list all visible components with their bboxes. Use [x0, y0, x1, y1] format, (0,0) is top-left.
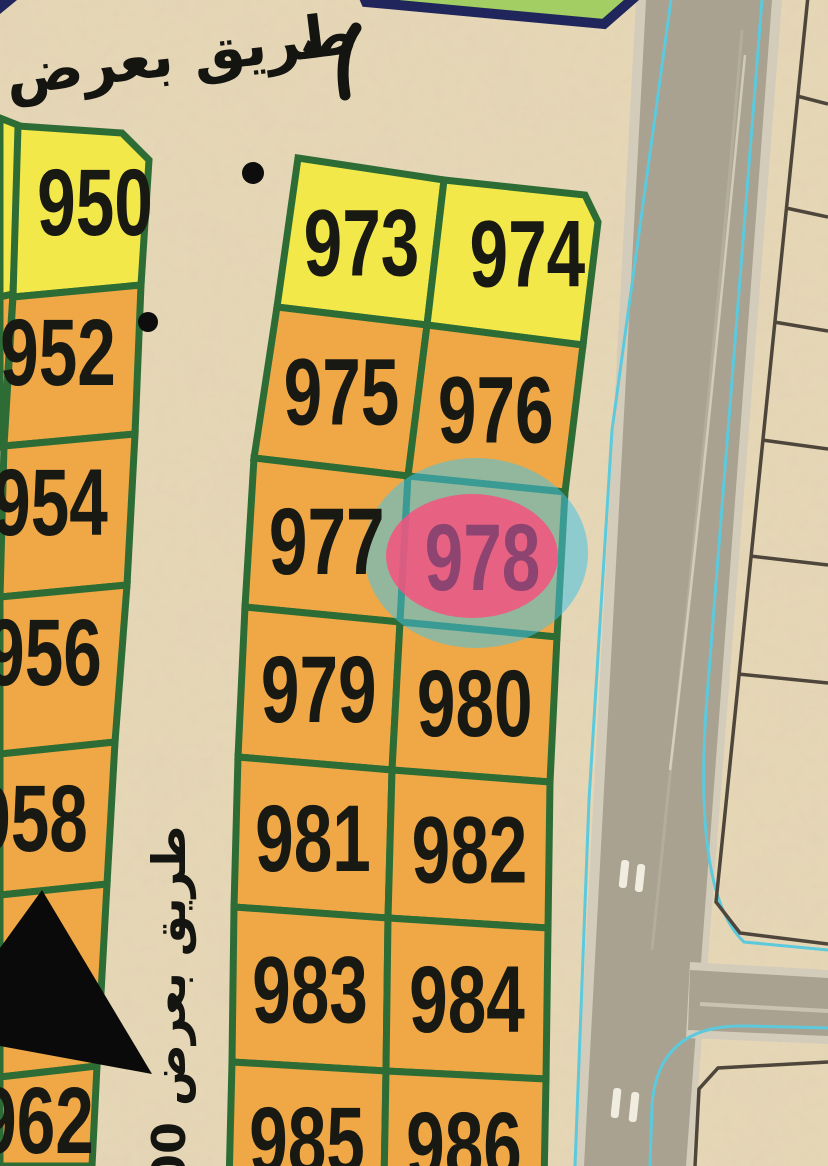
- black-dot-marker: [138, 312, 158, 332]
- plot-978-label: 978: [425, 504, 541, 610]
- plot-981-label: 981: [255, 785, 371, 891]
- plot-973-label: 973: [304, 190, 420, 296]
- plot-975-label: 975: [284, 339, 400, 445]
- plot-982-label: 982: [412, 797, 528, 903]
- plot-976-label: 976: [438, 357, 554, 463]
- plot-977-label: 977: [269, 488, 385, 594]
- plot-950-label: 950: [37, 149, 153, 255]
- plot-980-label: 980: [417, 650, 533, 756]
- plot-958-label: 958: [0, 765, 88, 871]
- plot-983-label: 983: [252, 937, 368, 1043]
- side-road-label: طريق بعرض 00: [142, 826, 196, 1166]
- map-canvas: 9509529549569589629739749759769779789799…: [0, 0, 828, 1166]
- plot-956-label: 956: [0, 599, 102, 705]
- plot-985-label: 985: [249, 1087, 365, 1166]
- plot-986-label: 986: [406, 1092, 522, 1166]
- parcel-map: 9509529549569589629739749759769779789799…: [0, 0, 828, 1166]
- black-dot-marker: [242, 162, 264, 184]
- plot-952-label: 952: [0, 299, 116, 405]
- plot-954-label: 954: [0, 449, 108, 555]
- plot-979-label: 979: [261, 636, 377, 742]
- plot-984-label: 984: [409, 946, 525, 1052]
- plot-962-label: 962: [0, 1067, 94, 1166]
- plot-974-label: 974: [470, 201, 586, 307]
